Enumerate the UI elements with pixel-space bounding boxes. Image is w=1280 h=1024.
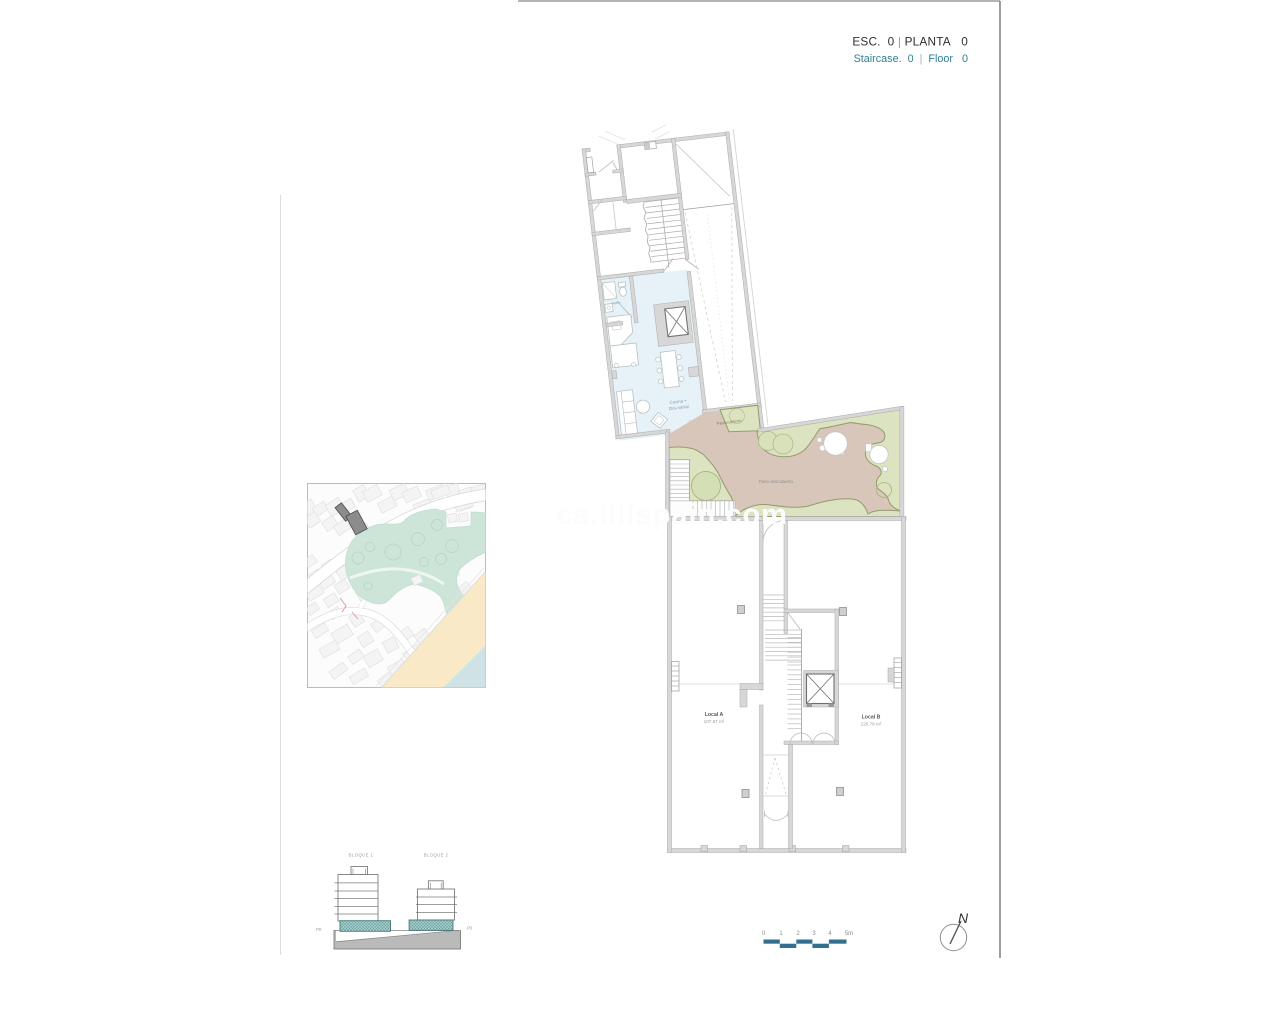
svg-text:P0: P0 bbox=[316, 927, 322, 932]
svg-text:107.87 m²: 107.87 m² bbox=[704, 719, 725, 724]
svg-text:P0: P0 bbox=[467, 926, 473, 931]
svg-text:Patio descubierto: Patio descubierto bbox=[759, 479, 793, 484]
svg-text:ESC. 0 | PLANTA 0: ESC. 0 | PLANTA 0 bbox=[852, 35, 968, 49]
svg-text:ca.llllspain.com: ca.llllspain.com bbox=[556, 499, 788, 531]
svg-text:Local B: Local B bbox=[862, 715, 881, 721]
svg-text:120.78 m²: 120.78 m² bbox=[861, 722, 882, 727]
svg-text:BLOQUE 1: BLOQUE 1 bbox=[349, 853, 374, 858]
svg-text:N: N bbox=[958, 910, 969, 926]
svg-text:Staircase. 0 | Floor 0: Staircase. 0 | Floor 0 bbox=[854, 53, 968, 65]
svg-text:5m: 5m bbox=[845, 931, 853, 937]
svg-text:Local A: Local A bbox=[705, 712, 724, 718]
svg-text:BLOQUE 2: BLOQUE 2 bbox=[424, 853, 449, 858]
